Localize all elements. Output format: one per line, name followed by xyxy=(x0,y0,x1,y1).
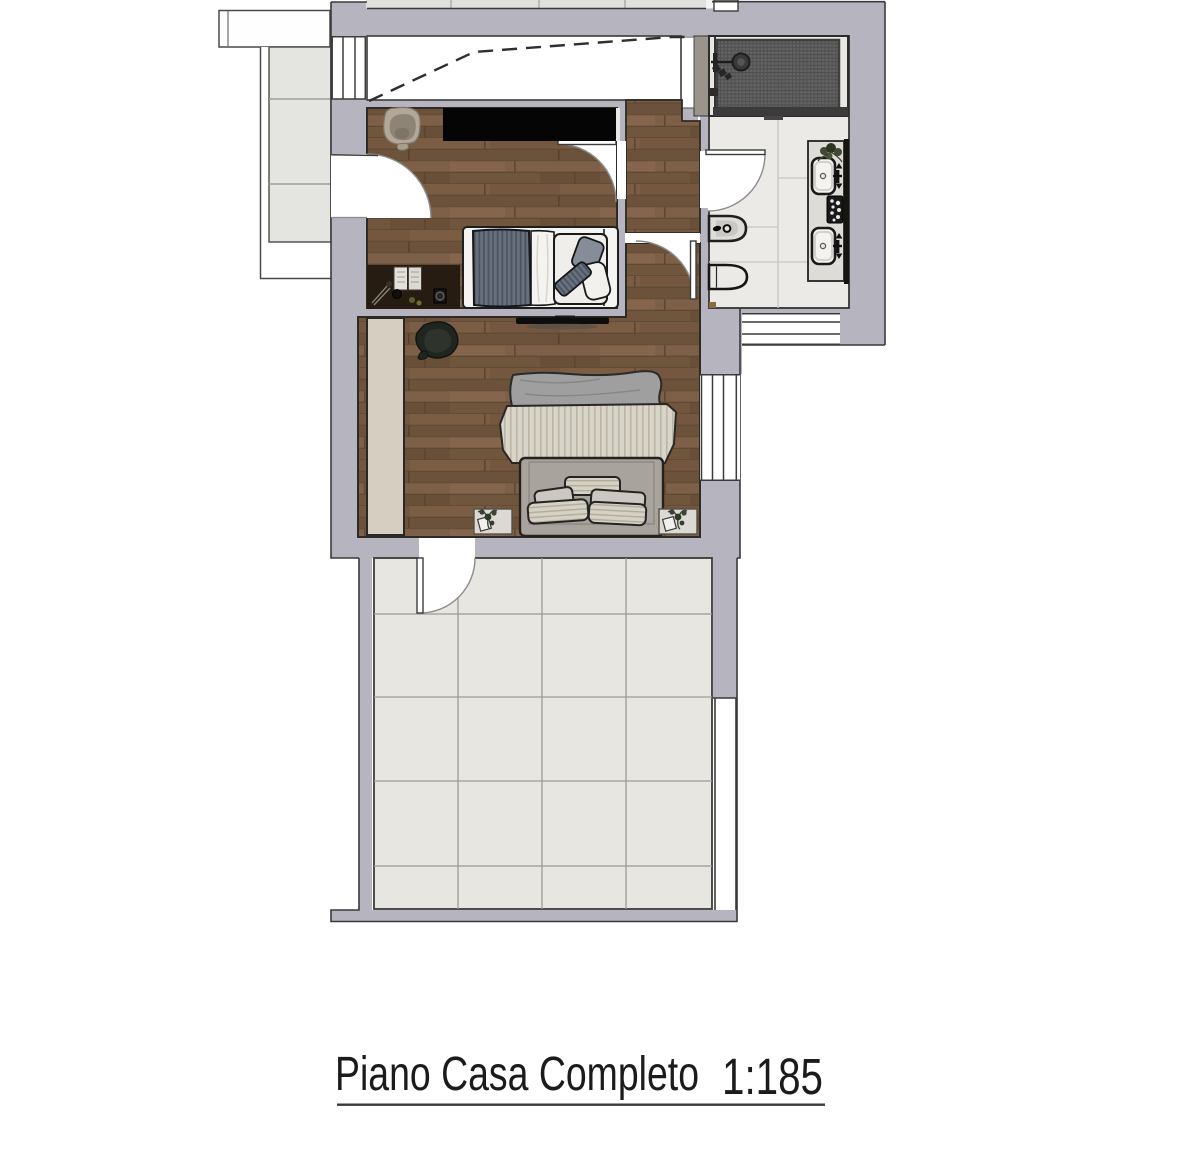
svg-text:1:185: 1:185 xyxy=(722,1048,823,1105)
svg-text:Piano Casa Completo: Piano Casa Completo xyxy=(335,1048,699,1101)
